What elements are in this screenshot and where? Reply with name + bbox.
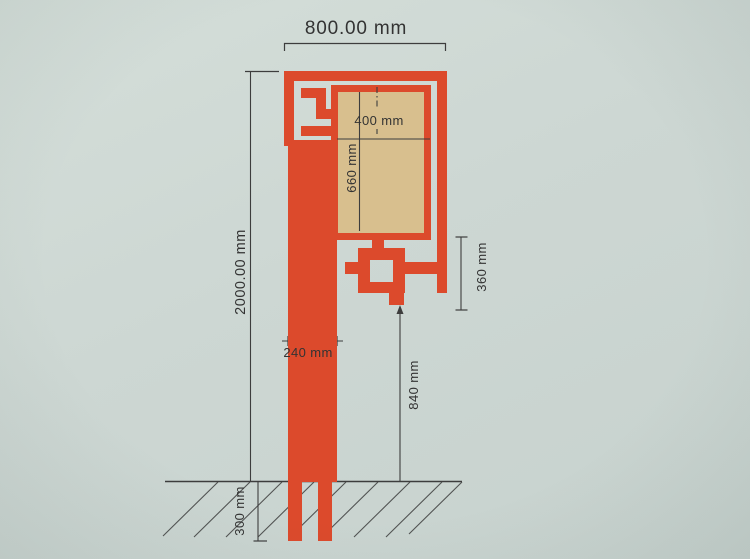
meander-bar: [316, 88, 326, 119]
label-ground-clearance: 840 mm: [406, 360, 421, 409]
anchor-leg-right: [318, 481, 332, 541]
meander-bar: [301, 126, 331, 136]
label-post-width: 240 mm: [283, 345, 332, 360]
label-overall-width: 800.00 mm: [305, 18, 407, 39]
anchor-leg-left: [288, 481, 302, 541]
label-panel-height: 660 mm: [344, 143, 359, 192]
frame-left-bar: [284, 71, 294, 146]
label-embed-depth: 300 mm: [232, 486, 247, 535]
main-post: [288, 140, 337, 482]
label-overall-height: 2000.00 mm: [233, 229, 249, 315]
frame-right-bar: [437, 71, 447, 293]
meander-bar: [326, 109, 333, 119]
ring-right-arm: [405, 262, 447, 274]
label-ornament-height: 360 mm: [474, 242, 489, 291]
signpost-technical-drawing: 800.00 mm 2000.00 mm 400 mm 660 mm 360 m…: [0, 0, 750, 559]
ring-left-stub: [345, 262, 358, 274]
frame-top-bar: [284, 71, 447, 81]
ring-bottom-tab: [389, 293, 404, 305]
label-panel-width: 400 mm: [354, 113, 403, 128]
diagram-canvas: 800.00 mm 2000.00 mm 400 mm 660 mm 360 m…: [0, 0, 750, 559]
